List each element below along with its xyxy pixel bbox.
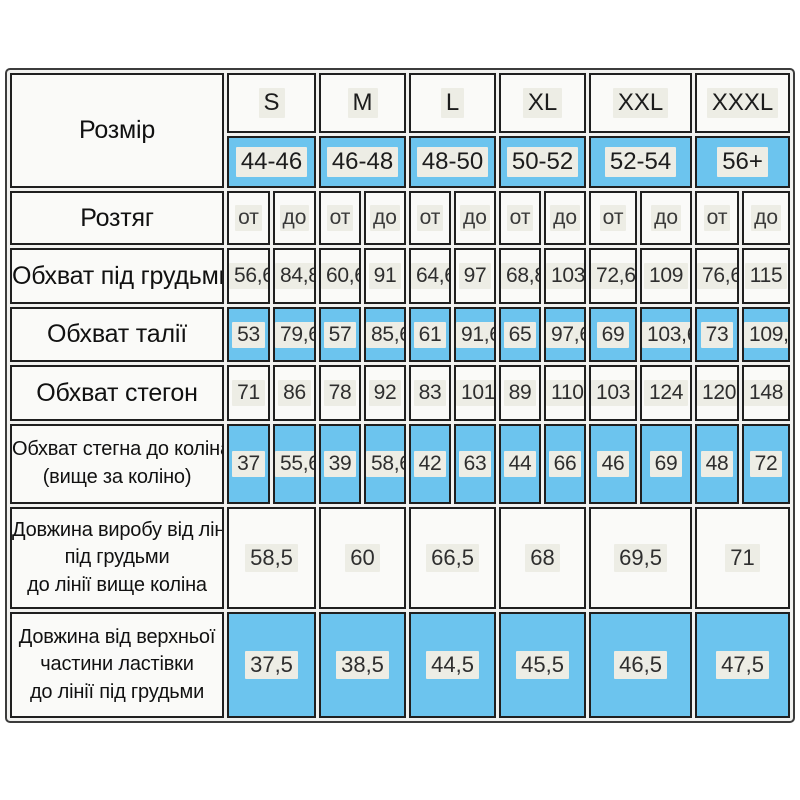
value-cell: 69	[640, 424, 692, 504]
value: 39	[324, 451, 357, 477]
from-cell: от	[695, 191, 739, 245]
value: 124	[644, 380, 688, 406]
to-label: до	[460, 205, 490, 231]
from-cell: от	[499, 191, 541, 245]
row-label-hips-text: Обхват стегон	[36, 379, 197, 407]
to-cell: до	[273, 191, 316, 245]
from-cell: от	[227, 191, 270, 245]
value-cell: 86	[273, 365, 316, 421]
value-cell: 71	[227, 365, 270, 421]
value: 61	[414, 322, 447, 348]
value: 69,5	[614, 544, 667, 572]
value-cell: 115	[742, 248, 790, 304]
size-letter: XL	[523, 88, 562, 118]
value-cell: 120	[695, 365, 739, 421]
range-value: 50-52	[507, 147, 578, 177]
value: 48	[701, 451, 734, 477]
value: 68	[525, 544, 559, 572]
size-header-cell-s: S	[227, 73, 316, 133]
value: 71	[232, 380, 265, 406]
value: 72	[750, 451, 783, 477]
value: 63	[459, 451, 492, 477]
row-label-underbust: Обхват під грудьми	[10, 248, 224, 304]
size-chart-table: Розмір S M L XL XXL XXXL 44-46 46-48 48-…	[5, 68, 795, 723]
value-cell: 44	[499, 424, 541, 504]
value: 97	[459, 263, 492, 289]
value: 46,5	[614, 651, 667, 679]
value: 57	[324, 322, 357, 348]
value-cell: 60	[319, 507, 406, 609]
value-cell: 109,6	[742, 307, 790, 362]
value-cell: 103	[544, 248, 586, 304]
range-value: 56+	[717, 147, 768, 177]
to-cell: до	[364, 191, 406, 245]
row-label-top-length-text: Довжина від верхньої частини ластівки до…	[12, 624, 222, 707]
size-letter: S	[259, 88, 285, 118]
value-cell: 78	[319, 365, 361, 421]
value-cell: 42	[409, 424, 451, 504]
range-cell-m: 46-48	[319, 136, 406, 188]
value: 42	[414, 451, 447, 477]
value: 86	[278, 380, 311, 406]
size-letter: XXL	[613, 88, 668, 118]
value-cell: 66,5	[409, 507, 496, 609]
value-cell: 63	[454, 424, 496, 504]
value: 58,6	[366, 451, 406, 477]
value: 84,8	[275, 263, 316, 289]
value-cell: 103	[589, 365, 637, 421]
range-cell-xl: 50-52	[499, 136, 586, 188]
value: 60	[345, 544, 379, 572]
value: 69	[597, 322, 630, 348]
to-label: до	[370, 205, 400, 231]
value-cell: 58,5	[227, 507, 316, 609]
value: 148	[744, 380, 788, 406]
value-cell: 92	[364, 365, 406, 421]
size-letter: XXXL	[707, 88, 778, 118]
value-cell: 124	[640, 365, 692, 421]
value-cell: 47,5	[695, 612, 790, 718]
value-cell: 83	[409, 365, 451, 421]
value: 53	[232, 322, 265, 348]
value: 85,6	[366, 322, 406, 348]
range-cell-l: 48-50	[409, 136, 496, 188]
to-cell: до	[742, 191, 790, 245]
value-cell: 53	[227, 307, 270, 362]
value: 109,6	[744, 322, 790, 348]
size-header-cell-m: M	[319, 73, 406, 133]
value: 109	[644, 263, 688, 289]
value-cell: 91	[364, 248, 406, 304]
value-cell: 69	[589, 307, 637, 362]
value: 97,6	[546, 322, 586, 348]
value-cell: 68,8	[499, 248, 541, 304]
value-cell: 76,6	[695, 248, 739, 304]
from-cell: от	[589, 191, 637, 245]
value: 110	[546, 380, 586, 406]
value: 89	[504, 380, 537, 406]
value: 68,8	[501, 263, 541, 289]
value-cell: 57	[319, 307, 361, 362]
value: 37	[232, 451, 265, 477]
range-value: 44-46	[236, 147, 307, 177]
value-cell: 45,5	[499, 612, 586, 718]
value-cell: 46	[589, 424, 637, 504]
to-cell: до	[640, 191, 692, 245]
size-header-cell-xl: XL	[499, 73, 586, 133]
from-label: от	[704, 205, 731, 231]
value: 76,6	[697, 263, 739, 289]
value-cell: 46,5	[589, 612, 692, 718]
size-letter: M	[348, 88, 378, 118]
from-label: от	[417, 205, 444, 231]
value: 69	[650, 451, 683, 477]
value-cell: 37	[227, 424, 270, 504]
value-cell: 71	[695, 507, 790, 609]
value: 103	[591, 380, 635, 406]
row-label-underbust-text: Обхват під грудьми	[12, 262, 224, 290]
row-label-thigh: Обхват стегна до коліна (вище за коліно)	[10, 424, 224, 504]
from-label: от	[600, 205, 627, 231]
row-label-thigh-text: Обхват стегна до коліна (вище за коліно)	[12, 436, 222, 491]
value: 37,5	[245, 651, 298, 679]
row-label-waist: Обхват талії	[10, 307, 224, 362]
from-cell: от	[319, 191, 361, 245]
value: 72,6	[591, 263, 637, 289]
size-header-cell-xxl: XXL	[589, 73, 692, 133]
value-cell: 72,6	[589, 248, 637, 304]
from-label: от	[327, 205, 354, 231]
range-cell-s: 44-46	[227, 136, 316, 188]
value-cell: 73	[695, 307, 739, 362]
row-label-size: Розмір	[10, 73, 224, 188]
value: 78	[324, 380, 357, 406]
value-cell: 65	[499, 307, 541, 362]
value-cell: 79,6	[273, 307, 316, 362]
value-cell: 60,6	[319, 248, 361, 304]
value: 44,5	[426, 651, 479, 679]
to-label: до	[550, 205, 580, 231]
from-label: от	[235, 205, 262, 231]
value-cell: 109	[640, 248, 692, 304]
from-label: от	[507, 205, 534, 231]
value-cell: 38,5	[319, 612, 406, 718]
value-cell: 66	[544, 424, 586, 504]
value: 64,6	[411, 263, 451, 289]
value-cell: 56,6	[227, 248, 270, 304]
value: 44	[504, 451, 537, 477]
value: 66	[549, 451, 582, 477]
value-cell: 72	[742, 424, 790, 504]
value: 58,5	[245, 544, 298, 572]
size-header-cell-xxxl: XXXL	[695, 73, 790, 133]
value-cell: 103,6	[640, 307, 692, 362]
value-cell: 101	[454, 365, 496, 421]
value: 115	[745, 263, 788, 289]
value-cell: 48	[695, 424, 739, 504]
value-cell: 37,5	[227, 612, 316, 718]
value: 66,5	[426, 544, 479, 572]
row-label-stretch-text: Розтяг	[80, 204, 154, 232]
row-label-stretch: Розтяг	[10, 191, 224, 245]
value: 65	[504, 322, 537, 348]
range-value: 46-48	[327, 147, 398, 177]
value-cell: 44,5	[409, 612, 496, 718]
value-cell: 97	[454, 248, 496, 304]
value-cell: 85,6	[364, 307, 406, 362]
range-cell-xxxl: 56+	[695, 136, 790, 188]
value-cell: 55,6	[273, 424, 316, 504]
to-label: до	[651, 205, 681, 231]
value: 45,5	[516, 651, 569, 679]
from-cell: от	[409, 191, 451, 245]
value-cell: 84,8	[273, 248, 316, 304]
row-label-top-length: Довжина від верхньої частини ластівки до…	[10, 612, 224, 718]
value: 55,6	[275, 451, 316, 477]
value: 101	[456, 380, 496, 406]
row-label-product-length: Довжина виробу від лінії під грудьми до …	[10, 507, 224, 609]
value: 60,6	[321, 263, 361, 289]
value-cell: 61	[409, 307, 451, 362]
value: 47,5	[716, 651, 769, 679]
range-cell-xxl: 52-54	[589, 136, 692, 188]
value-cell: 148	[742, 365, 790, 421]
size-header-cell-l: L	[409, 73, 496, 133]
value-cell: 110	[544, 365, 586, 421]
value-cell: 39	[319, 424, 361, 504]
range-value: 52-54	[605, 147, 676, 177]
size-letter: L	[441, 88, 464, 118]
value: 103,6	[642, 322, 692, 348]
row-label-size-text: Розмір	[79, 116, 155, 144]
value-cell: 91,6	[454, 307, 496, 362]
value: 79,6	[275, 322, 316, 348]
value: 71	[725, 544, 759, 572]
to-cell: до	[454, 191, 496, 245]
value: 56,6	[229, 263, 270, 289]
value: 46	[597, 451, 630, 477]
value-cell: 64,6	[409, 248, 451, 304]
value-cell: 89	[499, 365, 541, 421]
row-label-waist-text: Обхват талії	[47, 320, 187, 348]
value-cell: 58,6	[364, 424, 406, 504]
value: 103	[546, 263, 586, 289]
to-cell: до	[544, 191, 586, 245]
value-cell: 69,5	[589, 507, 692, 609]
value: 38,5	[336, 651, 389, 679]
to-label: до	[751, 205, 781, 231]
value: 73	[701, 322, 734, 348]
row-label-hips: Обхват стегон	[10, 365, 224, 421]
to-label: до	[280, 205, 310, 231]
value-cell: 68	[499, 507, 586, 609]
value-cell: 97,6	[544, 307, 586, 362]
value: 83	[414, 380, 447, 406]
row-label-product-length-text: Довжина виробу від лінії під грудьми до …	[12, 517, 222, 600]
value: 91	[369, 263, 402, 289]
range-value: 48-50	[417, 147, 488, 177]
value: 91,6	[456, 322, 496, 348]
value: 92	[369, 380, 402, 406]
value: 120	[697, 380, 739, 406]
